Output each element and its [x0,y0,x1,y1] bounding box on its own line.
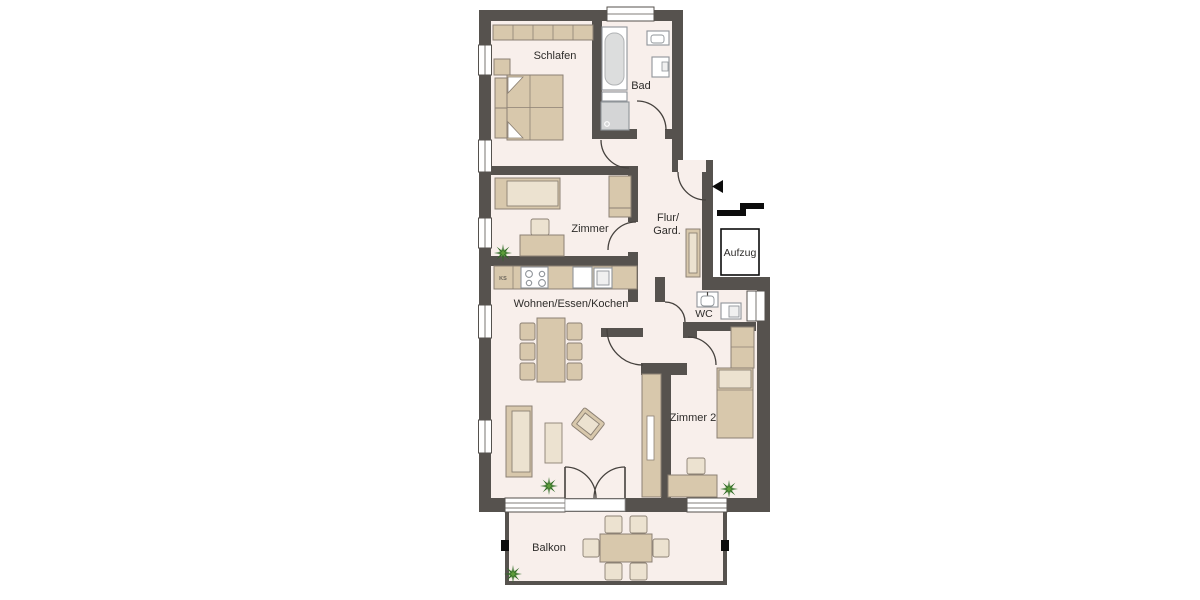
wall-bad-south-stub [665,129,674,139]
wardrobe-tall [642,374,661,497]
window-wc [747,291,765,321]
bathtub [602,27,627,90]
dining-table [537,318,565,382]
sofa-bed-zimmer [495,178,560,209]
landing-boundary [717,203,764,216]
sofa [506,406,532,477]
sink-bad [652,57,669,77]
elevator-label: Aufzug [724,247,757,259]
wall-zimmer-south [491,256,638,266]
balcony-door-frame [565,499,625,511]
sideboard-lower [495,108,507,138]
wardrobe-zimmer2 [731,327,754,368]
hall-wardrobe [686,229,700,277]
floor-plan-image: KS [0,0,1200,600]
kitchen-drainer [573,267,592,288]
toilet-wc [697,292,718,307]
kitchen-sink [594,268,612,288]
wall-wc-west [655,277,665,302]
kitchen-counter: KS [494,266,637,289]
wardrobe-schlafen [493,25,593,40]
balcony-anchor-right [721,540,729,551]
fridge-label: KS [499,276,507,282]
window-bottom-zimmer2 [687,498,727,512]
plant-icon [720,480,738,498]
sink-wc [721,303,741,319]
wall-entry-left [672,160,678,172]
wall-hall-east [702,172,713,277]
sideboard-upper [495,78,507,108]
toilet-bad [647,31,669,45]
room-label-bad: Bad [631,80,651,92]
window-left-3 [479,218,492,248]
window-left-2 [479,140,492,172]
bed-zimmer2 [717,368,753,438]
chair-zimmer [531,219,549,235]
balcony-table [600,534,652,562]
room-label-schlafen: Schlafen [534,50,577,62]
plant-icon [494,244,512,262]
room-label-flur-line2: Gard. [653,225,681,237]
balcony-rail-bottom [505,581,727,585]
plant-icon [540,477,558,495]
coffee-table [545,423,562,463]
window-top-bad [607,7,654,21]
window-left-4 [479,305,492,338]
desk-zimmer2 [668,475,717,497]
plant-icon [504,565,522,583]
nightstand [494,59,510,75]
elevator-landing [712,180,764,275]
bed-schlafen [507,75,563,140]
desk-zimmer [520,235,564,256]
room-label-zimmer2: Zimmer 2 [670,412,716,424]
balcony-anchor-left [501,540,509,551]
room-label-zimmer: Zimmer [571,223,609,235]
window-left-5 [479,420,492,453]
room-label-flur-line1: Flur/ [657,212,680,224]
window-bottom-wohnen [505,498,565,512]
floor-plan-page: KS [0,0,1200,600]
room-label-balkon: Balkon [532,542,566,554]
bath-cabinet [602,92,627,101]
room-label-wc: WC [695,308,713,320]
wall-schlafen-south [491,166,634,175]
window-left-1 [479,45,492,75]
shower [601,102,629,130]
entry-arrow-icon [712,180,723,193]
chair-zimmer2 [687,458,705,474]
room-label-wohnen: Wohnen/Essen/Kochen [514,298,629,310]
wall-entry-right [706,160,713,172]
stove [521,267,548,288]
wardrobe-zimmer [609,176,631,217]
